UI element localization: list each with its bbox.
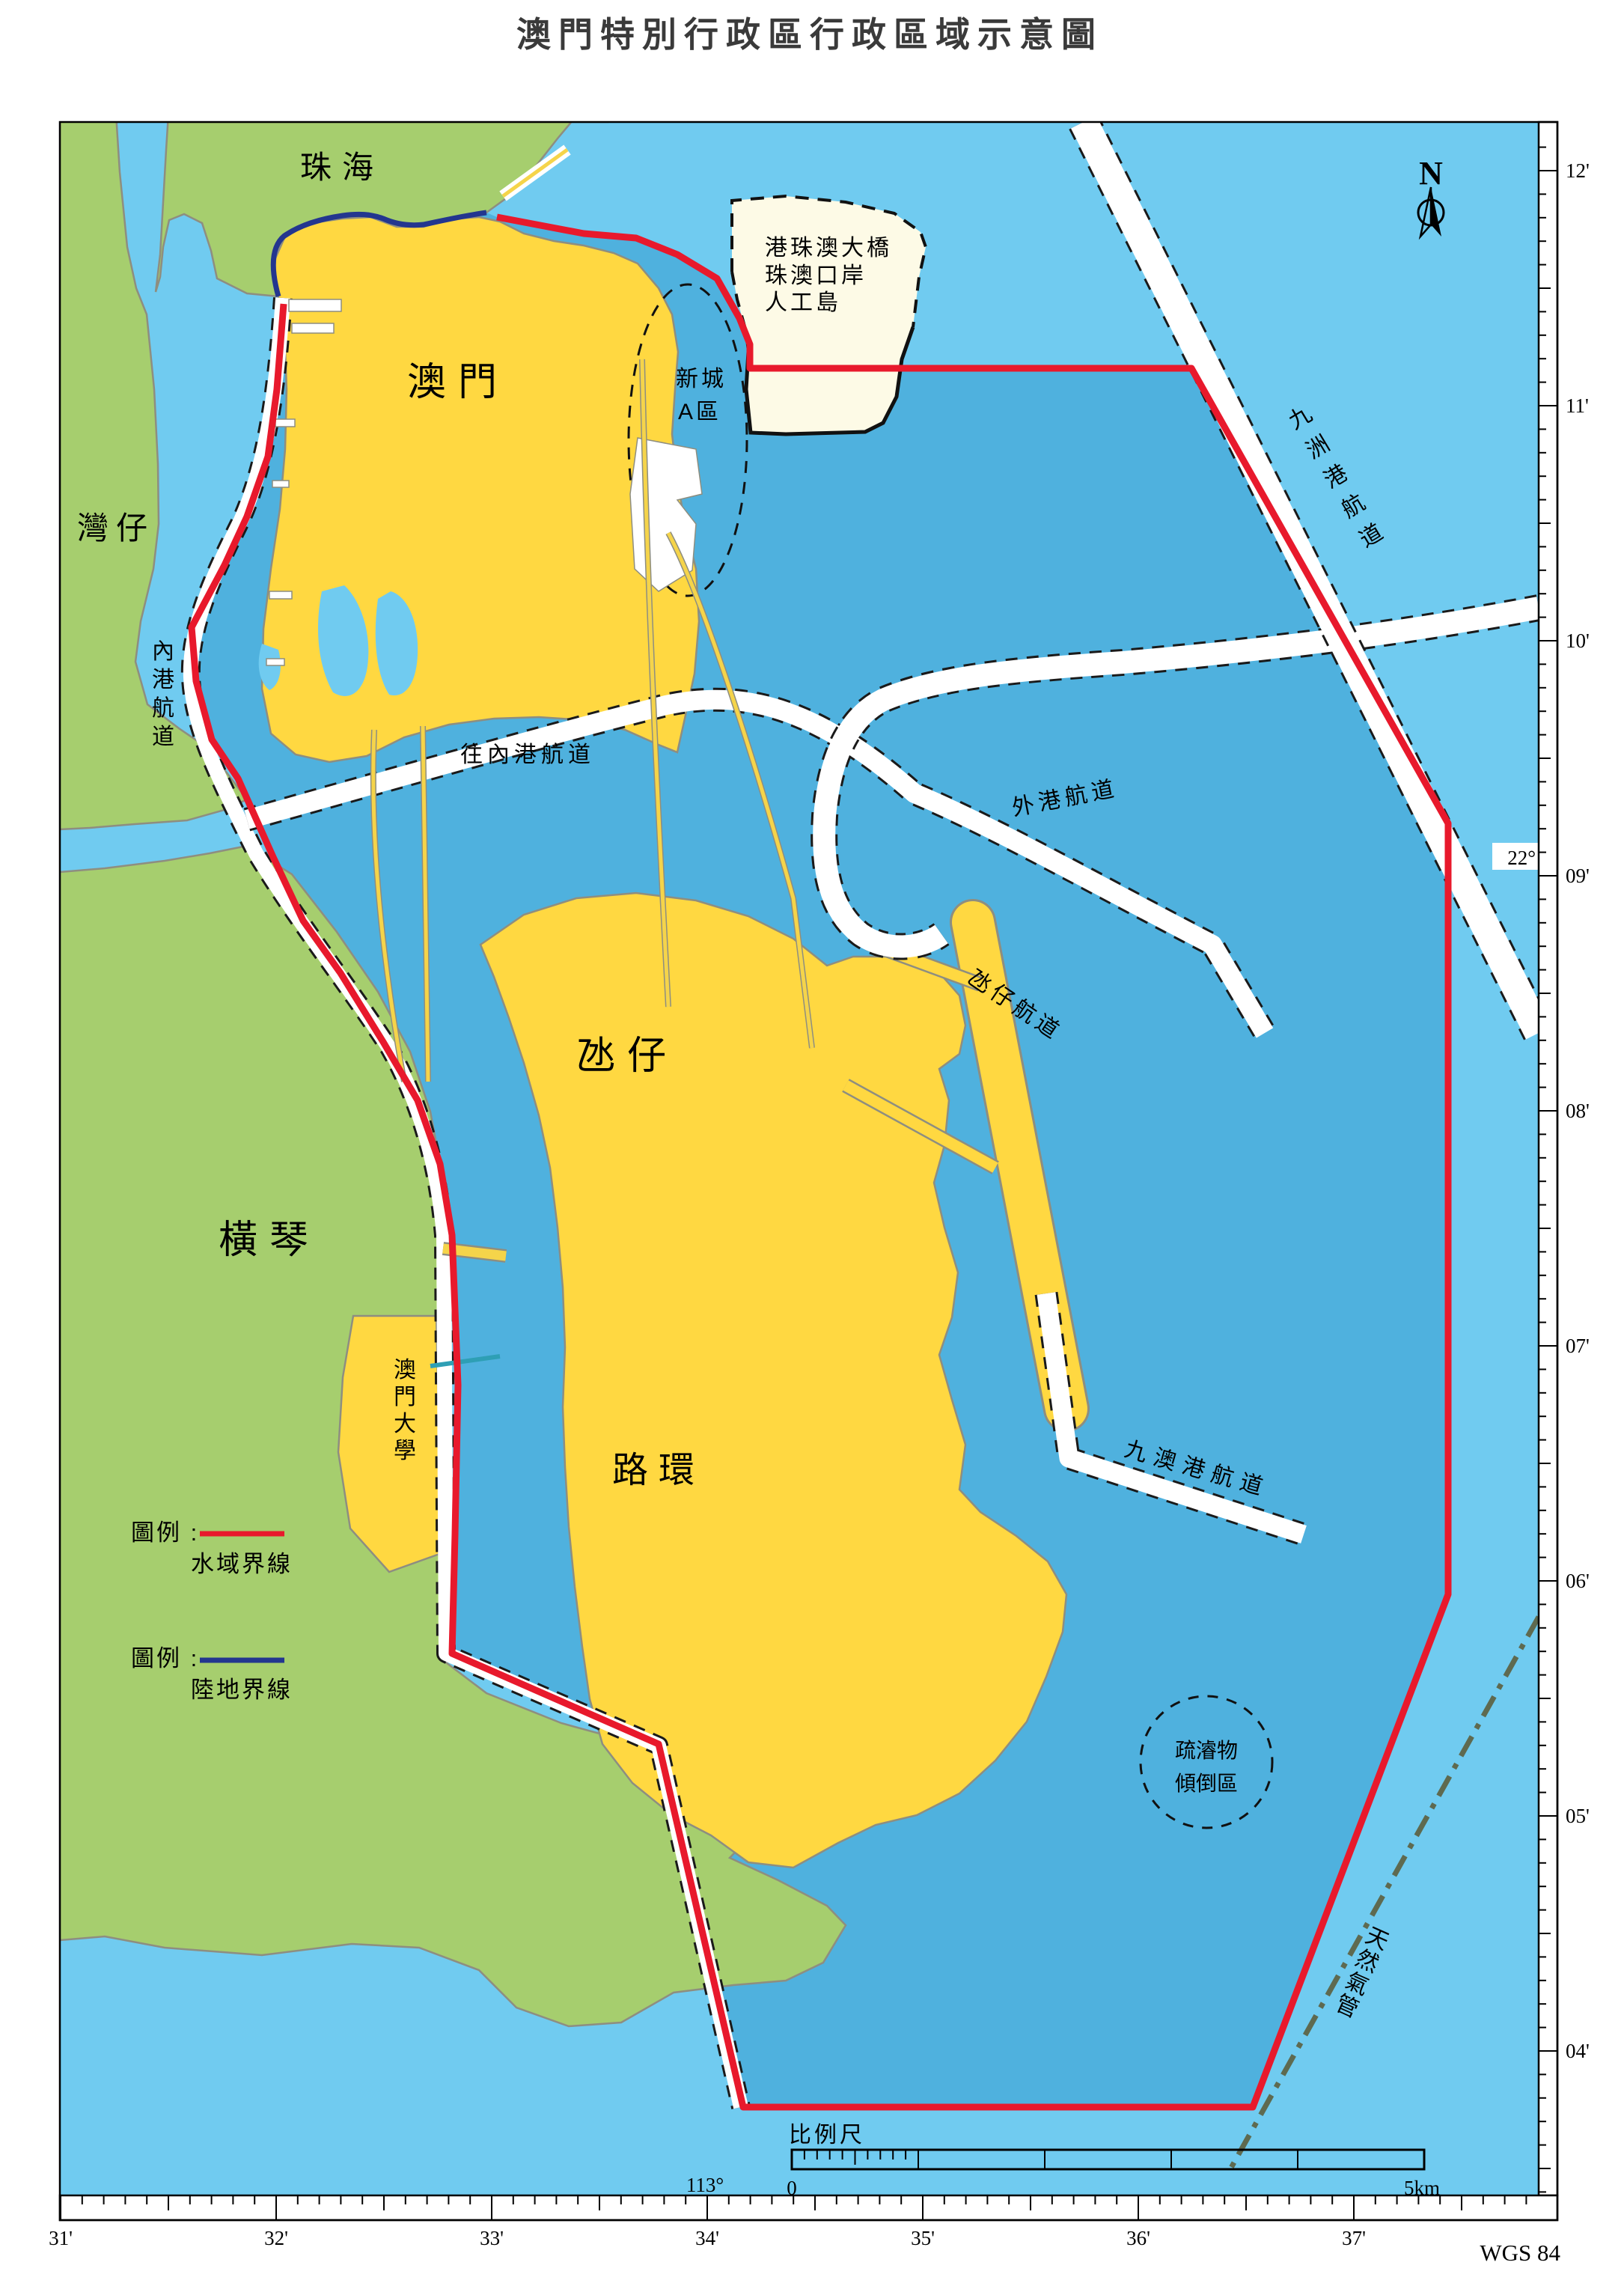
label-hengqin: 橫琴 (219, 1219, 320, 1262)
label-wangneigang: 往內港航道 (460, 743, 595, 767)
svg-text:06': 06' (1566, 1570, 1590, 1592)
label-wanzai: 灣仔 (77, 510, 155, 546)
legend-label-1: 圖例 : (131, 1520, 199, 1546)
right-ruler-labels: 12'11'10'09'08'07'06'05'04' (1566, 159, 1590, 2062)
label-lat-deg: 22° (1507, 847, 1536, 869)
legend-land-label: 陸地界線 (191, 1677, 293, 1703)
svg-text:35': 35' (911, 2227, 935, 2249)
label-zhuhai: 珠海 (300, 150, 384, 185)
svg-text:04': 04' (1566, 2040, 1590, 2062)
legend-water-label: 水域界線 (191, 1551, 293, 1577)
right-ruler-strip (1539, 122, 1557, 2195)
datum-label: WGS 84 (1480, 2240, 1560, 2266)
legend-label-2: 圖例 : (131, 1645, 199, 1671)
land-um (338, 1316, 442, 1572)
label-coloane: 路環 (612, 1451, 705, 1490)
label-macau: 澳門 (407, 361, 509, 404)
svg-text:05': 05' (1566, 1805, 1590, 1827)
label-xincheng-2: A區 (678, 400, 721, 424)
label-lon-deg: 113° (686, 2174, 724, 2196)
label-xincheng-1: 新城 (676, 367, 727, 391)
page-title: 澳門特別行政區行政區域示意圖 (516, 15, 1103, 54)
bottom-ruler-labels: 31'32'33'34'35'36'37' (49, 2227, 1366, 2249)
svg-text:37': 37' (1342, 2227, 1366, 2249)
svg-text:07': 07' (1566, 1335, 1590, 1357)
svg-text:12': 12' (1566, 159, 1590, 182)
label-island-3: 人工島 (765, 290, 841, 315)
svg-text:34': 34' (695, 2227, 719, 2249)
svg-text:09': 09' (1566, 865, 1590, 887)
label-island-2: 珠澳口岸 (765, 263, 867, 288)
label-dumping-2: 傾倒區 (1175, 1772, 1238, 1795)
north-label: N (1419, 155, 1443, 192)
svg-text:10': 10' (1566, 630, 1590, 652)
svg-text:33': 33' (480, 2227, 504, 2249)
map-canvas: 比例尺 0 5km N 珠海 灣仔 澳門 橫琴 氹仔 路環 新城 A區 港珠澳大… (60, 79, 1539, 2199)
map-page: 澳門特別行政區行政區域示意圖 (0, 0, 1624, 2283)
svg-text:36': 36' (1126, 2227, 1150, 2249)
label-island-1: 港珠澳大橋 (765, 236, 892, 260)
svg-text:32': 32' (264, 2227, 288, 2249)
label-taipa: 氹仔 (576, 1034, 678, 1078)
svg-text:11': 11' (1566, 394, 1589, 417)
label-dumping-1: 疏濬物 (1175, 1739, 1238, 1762)
svg-text:08': 08' (1566, 1100, 1590, 1122)
scale-bar-title: 比例尺 (789, 2123, 865, 2148)
svg-text:31': 31' (49, 2227, 73, 2249)
